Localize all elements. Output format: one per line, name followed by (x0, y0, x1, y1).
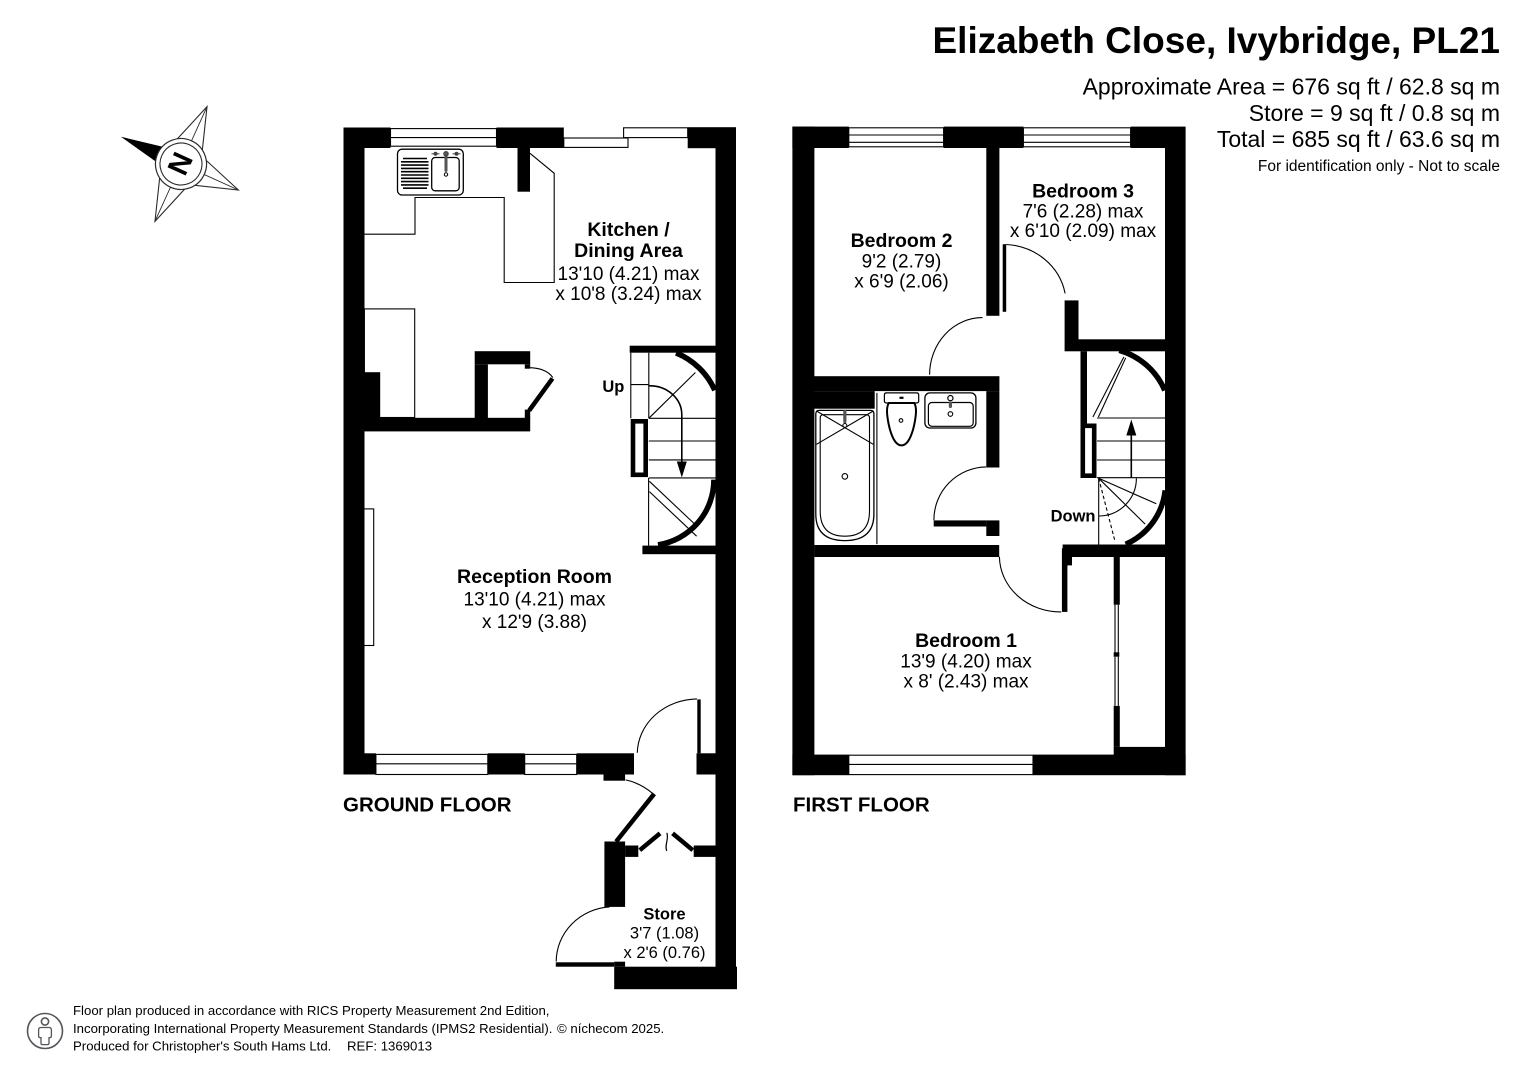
svg-text:x 12'9 (3.88): x 12'9 (3.88) (482, 612, 587, 633)
svg-text:Store: Store (643, 906, 685, 924)
svg-text:x 8' (2.43) max: x 8' (2.43) max (903, 672, 1029, 693)
svg-text:Reception Room: Reception Room (457, 566, 612, 588)
svg-text:x 2'6 (0.76): x 2'6 (0.76) (623, 944, 705, 962)
svg-text:Dining Area: Dining Area (574, 240, 683, 262)
svg-text:GROUND FLOOR: GROUND FLOOR (343, 794, 512, 817)
svg-text:Up: Up (602, 378, 624, 396)
svg-text:13'9 (4.20) max: 13'9 (4.20) max (900, 652, 1032, 673)
svg-text:For identification only - Not: For identification only - Not to scale (1258, 158, 1500, 175)
svg-text:13'10 (4.21) max: 13'10 (4.21) max (558, 264, 700, 285)
svg-text:Bedroom 3: Bedroom 3 (1032, 181, 1134, 203)
svg-text:3'7 (1.08): 3'7 (1.08) (630, 925, 699, 943)
svg-text:FIRST FLOOR: FIRST FLOOR (793, 794, 930, 817)
svg-text:Elizabeth Close, Ivybridge, PL: Elizabeth Close, Ivybridge, PL21 (932, 20, 1500, 61)
svg-text:Total = 685 sq ft / 63.6 sq m: Total = 685 sq ft / 63.6 sq m (1217, 126, 1500, 152)
svg-text:7'6 (2.28) max: 7'6 (2.28) max (1023, 202, 1144, 223)
svg-text:REF: 1369013: REF: 1369013 (347, 1039, 432, 1054)
svg-text:x 6'9 (2.06): x 6'9 (2.06) (854, 272, 948, 293)
svg-text:x 10'8 (3.24) max: x 10'8 (3.24) max (555, 284, 702, 305)
svg-text:Kitchen /: Kitchen / (587, 219, 670, 241)
svg-text:Store = 9 sq ft / 0.8 sq m: Store = 9 sq ft / 0.8 sq m (1249, 100, 1500, 126)
svg-text:Down: Down (1051, 507, 1096, 525)
svg-text:Bedroom 2: Bedroom 2 (851, 230, 953, 252)
svg-text:Approximate Area = 676 sq ft /: Approximate Area = 676 sq ft / 62.8 sq m (1083, 74, 1500, 100)
svg-text:Bedroom 1: Bedroom 1 (915, 630, 1017, 652)
svg-text:Produced for Christopher's Sou: Produced for Christopher's South Hams Lt… (73, 1039, 331, 1054)
svg-text:Floor plan produced in accorda: Floor plan produced in accordance with R… (73, 1003, 549, 1018)
svg-text:9'2 (2.79): 9'2 (2.79) (862, 251, 942, 272)
svg-text:x 6'10 (2.09) max: x 6'10 (2.09) max (1010, 221, 1157, 242)
svg-text:13'10 (4.21) max: 13'10 (4.21) max (464, 590, 606, 611)
svg-text:Incorporating International Pr: Incorporating International Property Mea… (73, 1021, 552, 1036)
svg-text:© níchecom 2025.: © níchecom 2025. (557, 1021, 664, 1036)
